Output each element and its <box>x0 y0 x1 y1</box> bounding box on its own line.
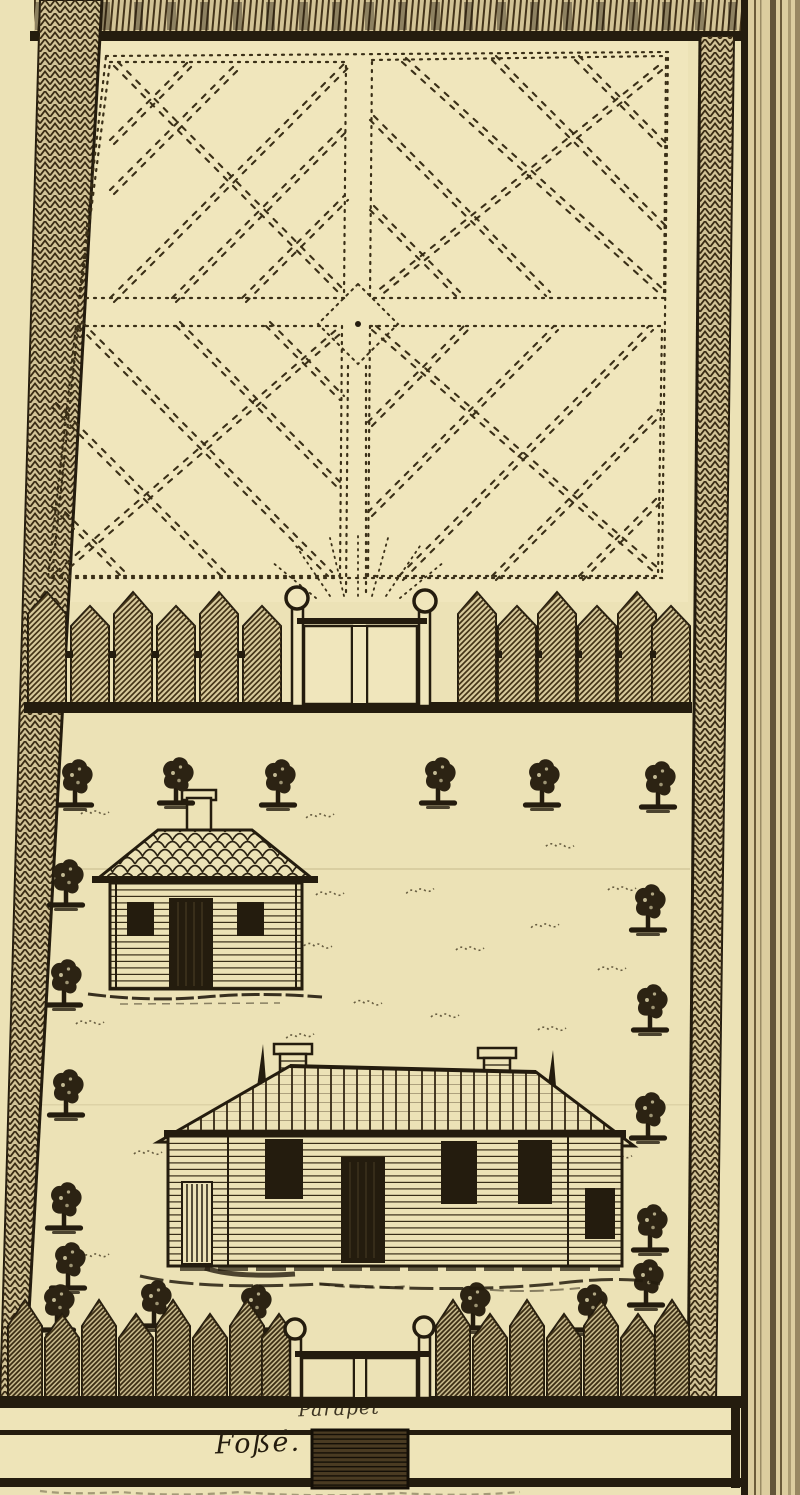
cabin-door <box>170 899 212 989</box>
gate-ball-finial <box>414 1317 434 1337</box>
cabin-window <box>238 903 263 935</box>
engraved-plate: Parapet Foßé. <box>0 0 800 1495</box>
garden-center-dot <box>355 321 361 327</box>
house-door <box>342 1158 384 1262</box>
strip-right-closure <box>731 1396 740 1488</box>
boundary-wall-top <box>30 0 742 41</box>
plate-border-line <box>741 0 748 1495</box>
house-window <box>442 1142 476 1203</box>
fortification-strips <box>0 1396 744 1495</box>
gate-ball-finial <box>286 587 308 609</box>
house-window <box>266 1140 302 1198</box>
house-louvered-window <box>182 1182 212 1264</box>
house-window <box>586 1189 614 1238</box>
parapet-strip <box>0 1408 738 1430</box>
page-edge <box>741 0 800 1495</box>
bridge <box>312 1430 408 1488</box>
gate-ball-finial <box>285 1319 305 1339</box>
gate-ball-finial <box>414 590 436 612</box>
house-window <box>519 1141 551 1203</box>
plate-drawing <box>0 0 800 1495</box>
house-wall <box>168 1136 622 1266</box>
cabin-window <box>128 903 153 935</box>
